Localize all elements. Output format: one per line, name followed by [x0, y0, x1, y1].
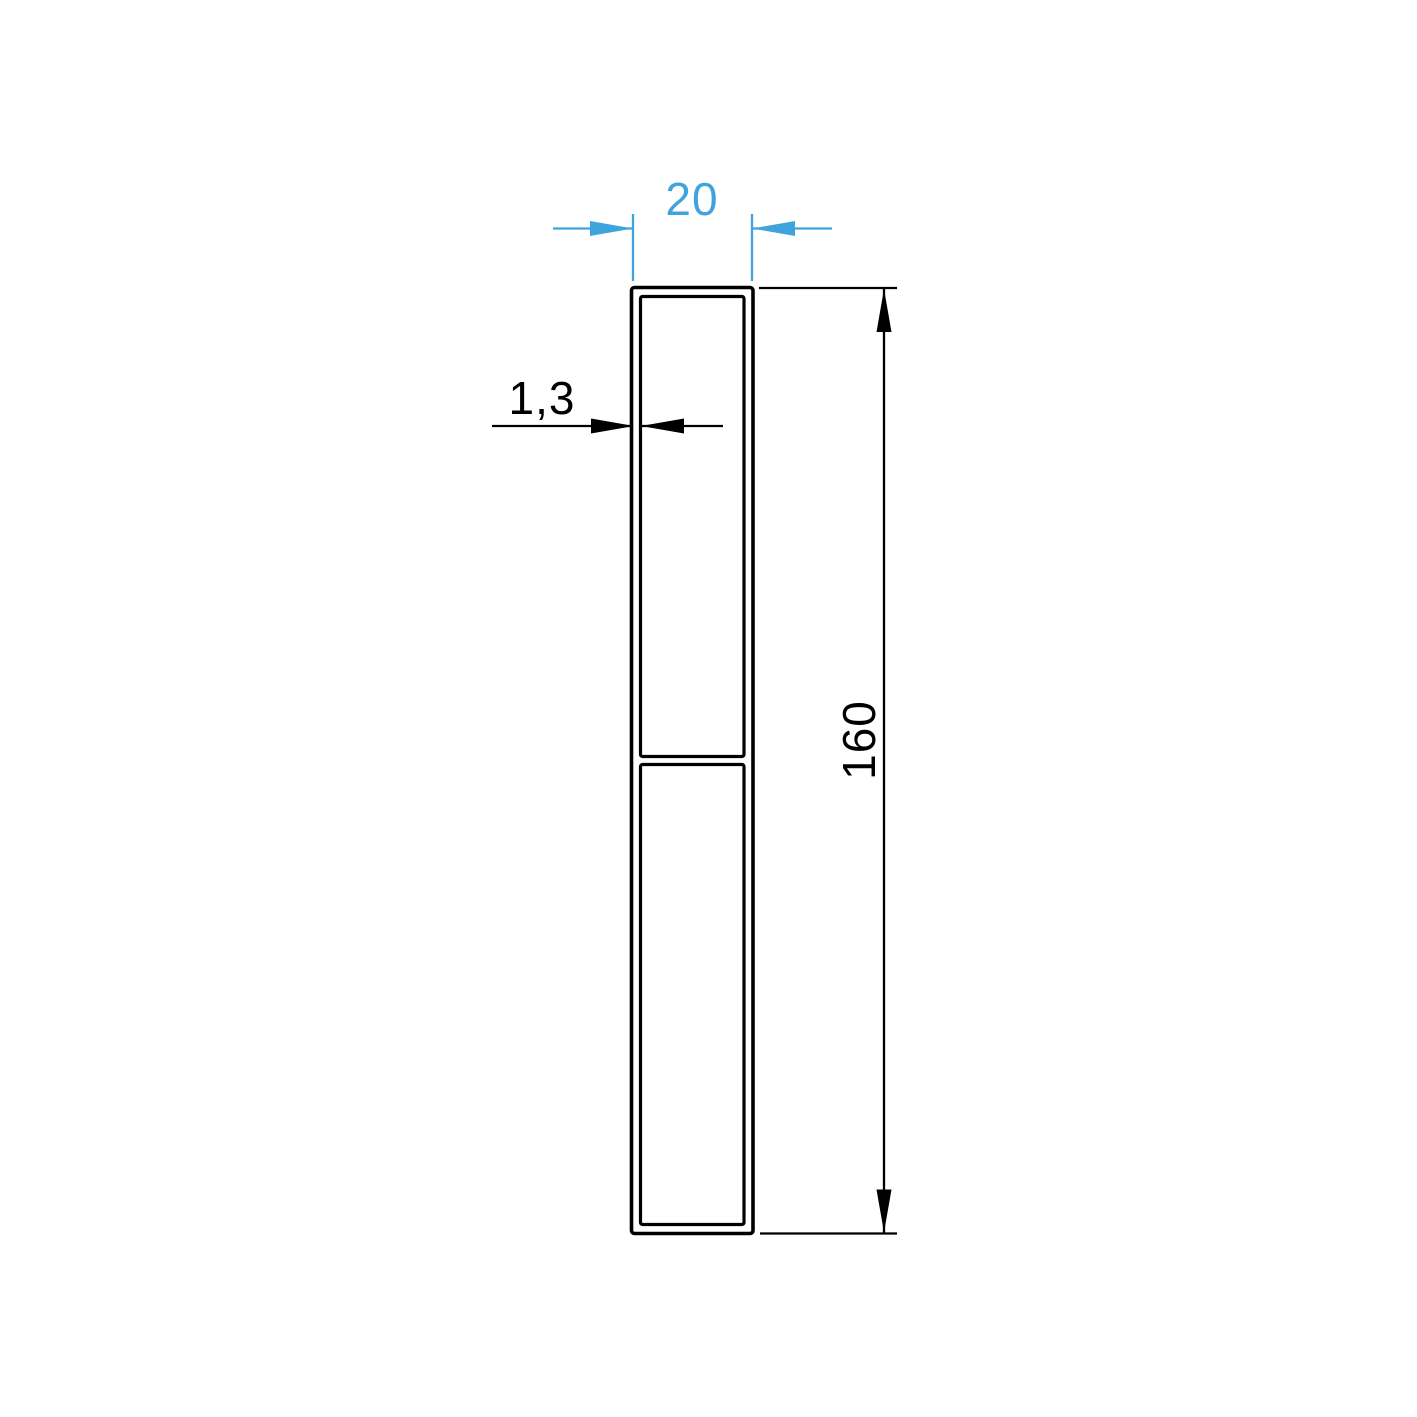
- width-dim-arrow-right: [752, 221, 795, 236]
- technical-drawing-canvas: 20 1,3 160: [0, 0, 1417, 1417]
- width-dim-arrow-left: [590, 221, 633, 236]
- profile-inner-contour-bottom: [641, 765, 745, 1225]
- profile-inner-contour-top: [641, 297, 745, 757]
- profile-outline: [632, 288, 754, 1234]
- height-dimension: 160: [759, 288, 897, 1234]
- wall-dim-arrow-left: [591, 419, 634, 434]
- height-dim-arrow-top: [877, 289, 892, 332]
- wall-thickness-dimension: 1,3: [492, 372, 723, 434]
- profile-cross-section-drawing: 20 1,3 160: [0, 0, 1417, 1417]
- wall-dim-arrow-right: [641, 419, 684, 434]
- wall-dim-label: 1,3: [509, 372, 576, 424]
- height-dim-arrow-bottom: [877, 1190, 892, 1233]
- width-dim-label: 20: [665, 173, 718, 225]
- profile-outer-contour: [632, 288, 754, 1234]
- width-dimension: 20: [553, 173, 832, 281]
- height-dim-label: 160: [833, 700, 885, 780]
